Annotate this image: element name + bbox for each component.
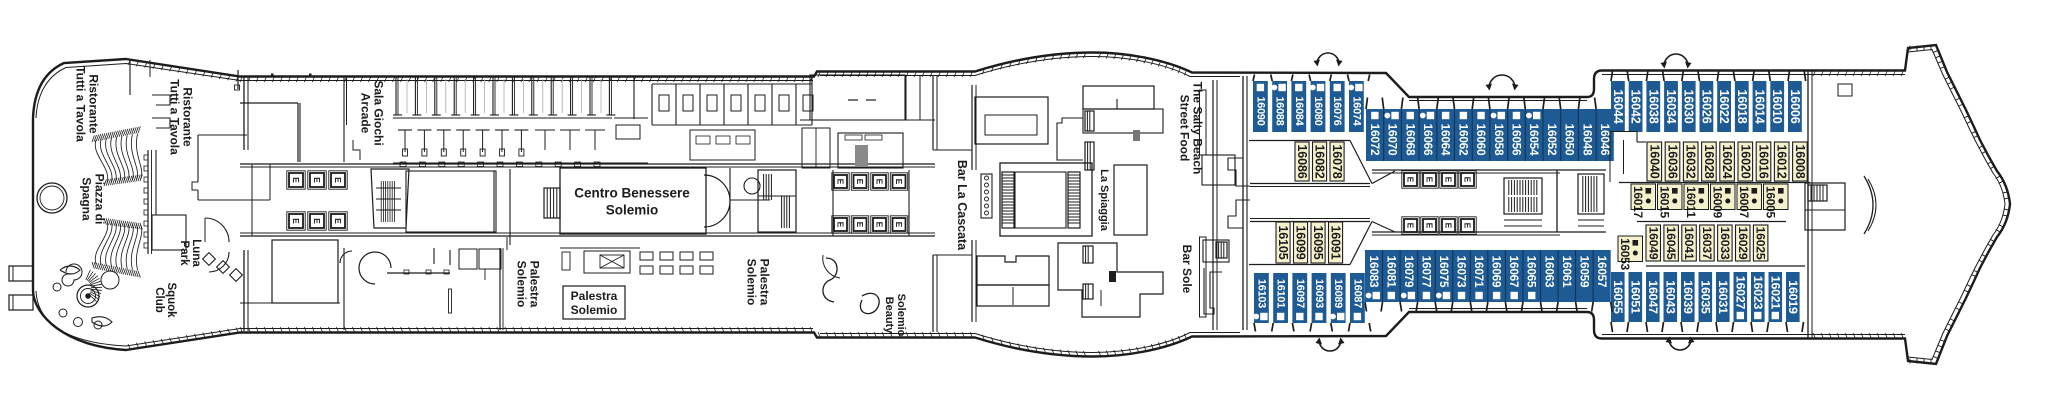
svg-text:E: E bbox=[836, 222, 846, 228]
svg-text:16086: 16086 bbox=[1295, 144, 1309, 178]
svg-text:E: E bbox=[1406, 223, 1416, 229]
svg-text:16026: 16026 bbox=[1699, 89, 1713, 123]
svg-text:E: E bbox=[1444, 223, 1454, 229]
svg-text:16060: 16060 bbox=[1474, 124, 1488, 156]
svg-text:E: E bbox=[291, 177, 301, 183]
svg-text:E: E bbox=[333, 177, 343, 183]
svg-text:E: E bbox=[875, 179, 885, 185]
svg-text:Solemio: Solemio bbox=[895, 294, 907, 337]
svg-text:Solemio: Solemio bbox=[571, 303, 618, 317]
svg-text:16040: 16040 bbox=[1647, 144, 1661, 178]
svg-text:16095: 16095 bbox=[1311, 225, 1325, 259]
svg-text:E: E bbox=[1463, 177, 1473, 183]
svg-text:16066: 16066 bbox=[1421, 124, 1435, 156]
svg-text:16036: 16036 bbox=[1666, 144, 1680, 178]
svg-text:16017: 16017 bbox=[1631, 186, 1645, 218]
svg-text:Tutti a Tavola: Tutti a Tavola bbox=[168, 79, 182, 155]
svg-text:16043: 16043 bbox=[1663, 280, 1677, 314]
svg-text:16074: 16074 bbox=[1350, 96, 1362, 125]
svg-text:16058: 16058 bbox=[1492, 124, 1506, 156]
svg-text:E: E bbox=[1444, 177, 1454, 183]
svg-text:16067: 16067 bbox=[1507, 256, 1521, 288]
svg-text:16009: 16009 bbox=[1711, 186, 1725, 218]
svg-text:E: E bbox=[1463, 223, 1473, 229]
svg-text:16081: 16081 bbox=[1384, 256, 1398, 288]
svg-text:16079: 16079 bbox=[1402, 256, 1416, 288]
svg-text:16052: 16052 bbox=[1545, 124, 1559, 156]
svg-text:E: E bbox=[291, 218, 301, 224]
svg-text:16099: 16099 bbox=[1294, 225, 1308, 259]
svg-text:16007: 16007 bbox=[1737, 186, 1751, 218]
svg-text:Palestra: Palestra bbox=[757, 259, 771, 306]
svg-text:16038: 16038 bbox=[1646, 89, 1660, 123]
svg-text:16051: 16051 bbox=[1628, 280, 1642, 314]
svg-text:16012: 16012 bbox=[1775, 144, 1789, 178]
svg-text:Tutti a Tavola: Tutti a Tavola bbox=[74, 66, 88, 142]
svg-text:16006: 16006 bbox=[1788, 89, 1802, 123]
svg-text:16023: 16023 bbox=[1751, 276, 1765, 310]
svg-text:16031: 16031 bbox=[1716, 280, 1730, 314]
svg-text:E: E bbox=[333, 218, 343, 224]
svg-text:Squok: Squok bbox=[165, 282, 177, 318]
svg-text:Solemio: Solemio bbox=[515, 261, 529, 308]
svg-text:16024: 16024 bbox=[1720, 144, 1734, 178]
svg-text:16050: 16050 bbox=[1563, 124, 1577, 156]
svg-text:16071: 16071 bbox=[1472, 256, 1486, 288]
svg-text:E: E bbox=[855, 222, 865, 228]
svg-text:16037: 16037 bbox=[1700, 227, 1714, 260]
svg-text:16047: 16047 bbox=[1646, 280, 1660, 314]
svg-text:16028: 16028 bbox=[1702, 144, 1716, 178]
svg-text:16083: 16083 bbox=[1367, 256, 1381, 288]
svg-text:16097: 16097 bbox=[1294, 279, 1306, 308]
svg-text:Street Food: Street Food bbox=[1178, 95, 1192, 162]
svg-text:16082: 16082 bbox=[1313, 144, 1327, 178]
svg-text:Club: Club bbox=[153, 287, 165, 313]
svg-text:Ristorante: Ristorante bbox=[86, 74, 100, 134]
svg-text:16027: 16027 bbox=[1733, 276, 1747, 310]
svg-text:16073: 16073 bbox=[1455, 256, 1469, 288]
svg-text:Spagna: Spagna bbox=[80, 177, 94, 221]
svg-text:16076: 16076 bbox=[1331, 96, 1343, 125]
svg-text:16030: 16030 bbox=[1682, 89, 1696, 123]
svg-text:16093: 16093 bbox=[1313, 279, 1325, 308]
svg-text:16056: 16056 bbox=[1509, 124, 1523, 156]
svg-text:16018: 16018 bbox=[1735, 89, 1749, 123]
svg-text:16075: 16075 bbox=[1437, 256, 1451, 288]
svg-text:Ristorante: Ristorante bbox=[180, 87, 194, 147]
svg-text:Bar Sole: Bar Sole bbox=[1180, 245, 1194, 294]
svg-text:16049: 16049 bbox=[1646, 227, 1660, 260]
svg-text:Centro Benessere: Centro Benessere bbox=[574, 186, 690, 201]
svg-text:16069: 16069 bbox=[1490, 256, 1504, 288]
svg-text:Piazza di: Piazza di bbox=[92, 174, 106, 225]
svg-text:Palestra: Palestra bbox=[571, 289, 618, 303]
svg-text:Solemio: Solemio bbox=[745, 259, 759, 306]
svg-text:E: E bbox=[894, 222, 904, 228]
svg-text:Palestra: Palestra bbox=[527, 261, 541, 308]
svg-text:16077: 16077 bbox=[1419, 256, 1433, 288]
svg-text:Arcade: Arcade bbox=[359, 93, 373, 134]
svg-text:16041: 16041 bbox=[1682, 227, 1696, 260]
svg-text:16005: 16005 bbox=[1764, 186, 1778, 218]
svg-text:16103: 16103 bbox=[1255, 279, 1267, 308]
svg-text:16014: 16014 bbox=[1753, 89, 1767, 123]
svg-text:16044: 16044 bbox=[1611, 89, 1625, 123]
svg-text:16064: 16064 bbox=[1439, 124, 1453, 156]
svg-text:16034: 16034 bbox=[1664, 89, 1678, 123]
svg-text:16105: 16105 bbox=[1276, 225, 1290, 259]
svg-text:E: E bbox=[1425, 177, 1435, 183]
svg-text:16054: 16054 bbox=[1527, 124, 1541, 156]
svg-text:E: E bbox=[855, 179, 865, 185]
svg-text:16087: 16087 bbox=[1351, 279, 1363, 308]
svg-text:16022: 16022 bbox=[1717, 89, 1731, 123]
svg-text:E: E bbox=[312, 218, 322, 224]
svg-text:Bar La Cascata: Bar La Cascata bbox=[955, 160, 969, 251]
svg-text:16072: 16072 bbox=[1368, 124, 1382, 156]
svg-text:16062: 16062 bbox=[1456, 124, 1470, 156]
svg-text:16057: 16057 bbox=[1595, 256, 1609, 288]
svg-text:16008: 16008 bbox=[1793, 144, 1807, 178]
svg-text:Sala Giochi: Sala Giochi bbox=[371, 80, 385, 145]
svg-text:Solemio: Solemio bbox=[606, 203, 659, 218]
svg-text:16089: 16089 bbox=[1332, 279, 1344, 308]
svg-text:16033: 16033 bbox=[1718, 227, 1732, 260]
svg-text:Beauty: Beauty bbox=[883, 297, 895, 335]
svg-text:16084: 16084 bbox=[1293, 96, 1305, 125]
svg-text:16015: 16015 bbox=[1658, 186, 1672, 218]
svg-text:16078: 16078 bbox=[1330, 144, 1344, 178]
svg-text:16091: 16091 bbox=[1329, 225, 1343, 259]
svg-text:16020: 16020 bbox=[1738, 144, 1752, 178]
svg-text:16061: 16061 bbox=[1560, 256, 1574, 288]
svg-text:16016: 16016 bbox=[1757, 144, 1771, 178]
svg-text:16025: 16025 bbox=[1754, 227, 1768, 260]
svg-text:16011: 16011 bbox=[1684, 186, 1698, 218]
svg-text:E: E bbox=[836, 179, 846, 185]
svg-text:16053: 16053 bbox=[1618, 238, 1632, 270]
svg-text:16039: 16039 bbox=[1681, 280, 1695, 314]
svg-text:E: E bbox=[312, 177, 322, 183]
svg-text:E: E bbox=[894, 179, 904, 185]
svg-text:16101: 16101 bbox=[1275, 279, 1287, 308]
svg-text:16059: 16059 bbox=[1577, 256, 1591, 288]
svg-text:16088: 16088 bbox=[1274, 96, 1286, 125]
svg-text:16068: 16068 bbox=[1403, 124, 1417, 156]
svg-text:16010: 16010 bbox=[1770, 89, 1784, 123]
svg-text:16032: 16032 bbox=[1684, 144, 1698, 178]
svg-text:16029: 16029 bbox=[1736, 227, 1750, 260]
svg-text:16070: 16070 bbox=[1386, 124, 1400, 156]
svg-text:16090: 16090 bbox=[1254, 96, 1266, 125]
svg-text:E: E bbox=[1425, 223, 1435, 229]
svg-text:16063: 16063 bbox=[1542, 256, 1556, 288]
svg-text:16035: 16035 bbox=[1698, 280, 1712, 314]
svg-text:16048: 16048 bbox=[1580, 124, 1594, 156]
svg-text:E: E bbox=[1406, 177, 1416, 183]
svg-text:Park: Park bbox=[178, 241, 190, 267]
svg-text:16021: 16021 bbox=[1768, 276, 1782, 310]
svg-text:La Spiaggia: La Spiaggia bbox=[1098, 169, 1110, 232]
svg-text:16019: 16019 bbox=[1786, 280, 1800, 314]
svg-text:16055: 16055 bbox=[1611, 280, 1625, 314]
svg-text:Luna: Luna bbox=[190, 239, 202, 267]
svg-text:E: E bbox=[875, 222, 885, 228]
svg-text:16065: 16065 bbox=[1525, 256, 1539, 288]
svg-text:16045: 16045 bbox=[1664, 227, 1678, 260]
svg-text:16042: 16042 bbox=[1629, 89, 1643, 123]
svg-text:16080: 16080 bbox=[1312, 96, 1324, 125]
